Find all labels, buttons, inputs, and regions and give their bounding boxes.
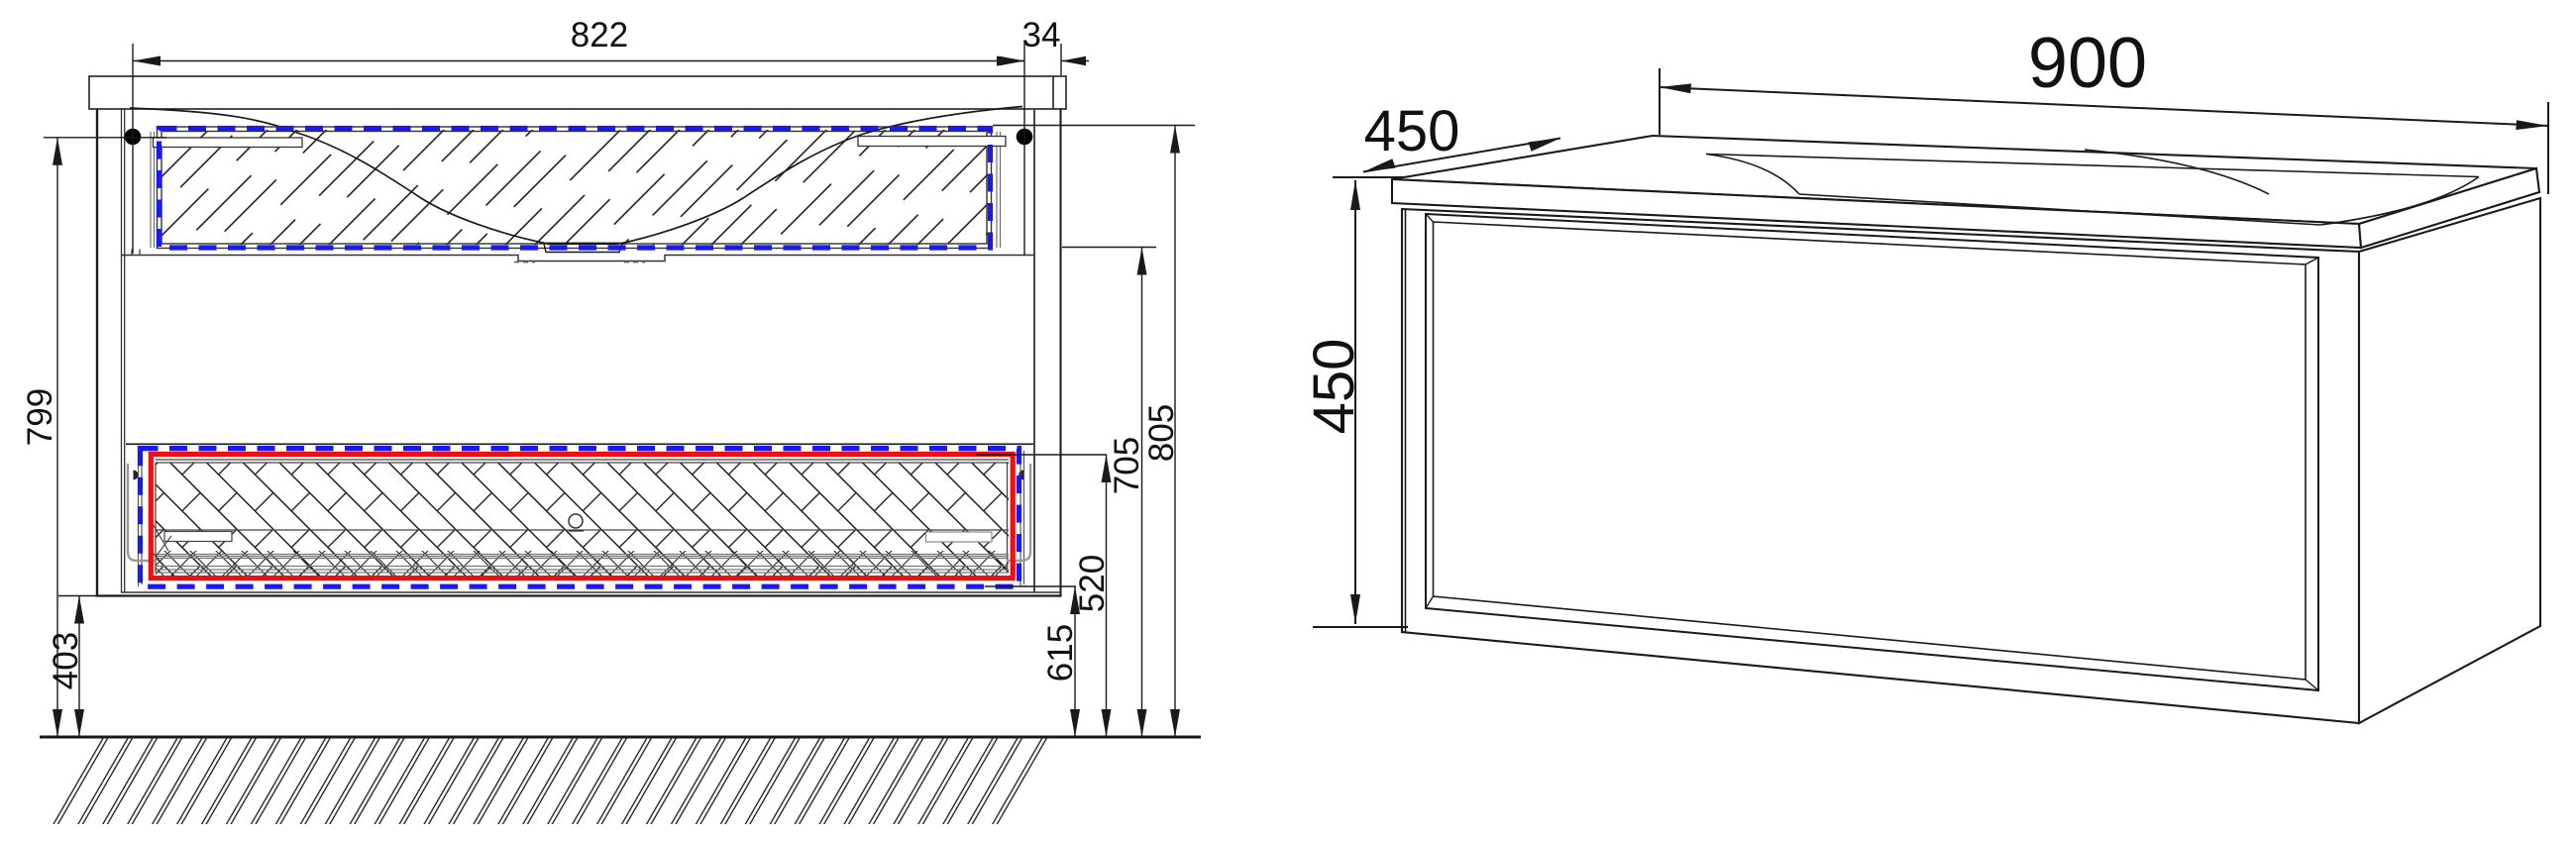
svg-text:450: 450 (1364, 99, 1460, 163)
svg-text:805: 805 (1142, 404, 1181, 462)
svg-text:705: 705 (1108, 437, 1146, 494)
svg-text:615: 615 (1041, 624, 1080, 682)
svg-text:34: 34 (1022, 16, 1061, 54)
svg-text:520: 520 (1073, 555, 1112, 612)
svg-text:799: 799 (21, 388, 59, 446)
svg-text:403: 403 (47, 632, 85, 689)
svg-text:822: 822 (571, 16, 628, 54)
svg-text:900: 900 (2028, 24, 2147, 103)
svg-text:450: 450 (1302, 339, 1366, 435)
